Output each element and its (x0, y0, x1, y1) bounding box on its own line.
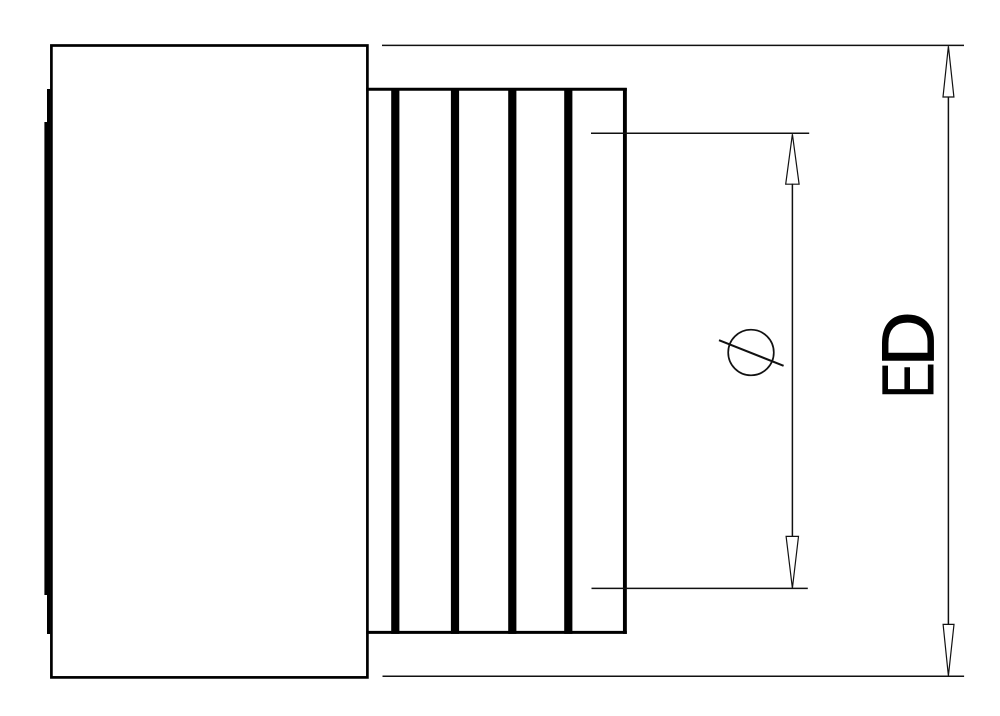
svg-text:D: D (867, 311, 950, 366)
svg-text:E: E (866, 362, 949, 399)
